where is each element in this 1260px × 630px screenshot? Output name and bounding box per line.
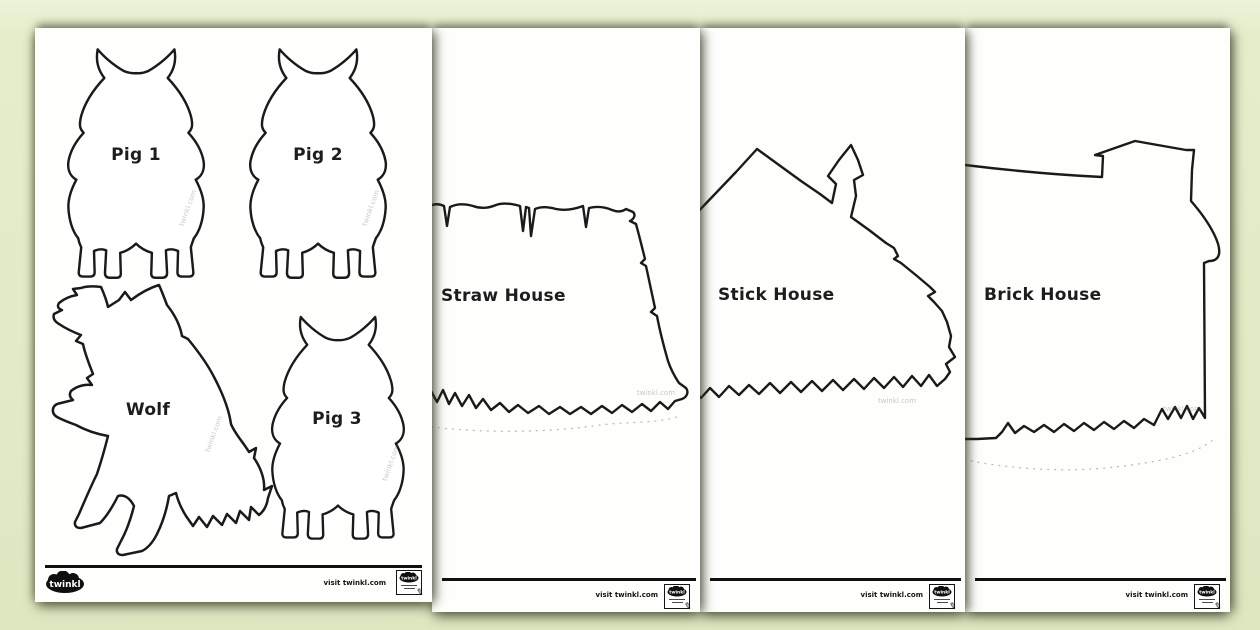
twinkl-logo: twinkl <box>45 571 85 595</box>
ground-dotted-line <box>965 440 1213 470</box>
twinkl-badge-cloud: twinkl <box>932 586 952 597</box>
stick-house-label: Stick House <box>718 285 834 305</box>
pig2-label: Pig 2 <box>293 145 343 165</box>
badge-caption-line <box>934 599 950 601</box>
visit-link: visit twinkl.com <box>324 579 386 587</box>
twinkl-badge-cloud: twinkl <box>667 586 687 597</box>
stick-house-outline <box>700 145 955 398</box>
page-brick-house: Brick House twinkl.com visit twinkl.com … <box>965 28 1230 612</box>
character-outlines <box>35 28 432 602</box>
visit-link: visit twinkl.com <box>861 591 923 599</box>
watermark-text: twinkl.com <box>637 389 675 397</box>
stick-house-art <box>700 28 965 612</box>
badge-caption-line <box>1202 602 1213 604</box>
twinkl-badge: twinkl ✎ <box>929 584 955 609</box>
pig1-label: Pig 1 <box>111 145 161 165</box>
badge-caption-line <box>404 588 415 590</box>
twinkl-badge: twinkl ✎ <box>1194 584 1220 609</box>
footer-rule <box>710 578 961 581</box>
wolf-outline <box>53 285 272 555</box>
twinkl-badge-text: twinkl <box>669 590 685 596</box>
brick-house-label: Brick House <box>984 285 1101 305</box>
straw-house-label: Straw House <box>441 286 566 306</box>
visit-link: visit twinkl.com <box>596 591 658 599</box>
brick-house-art <box>965 28 1230 612</box>
footer-rule <box>442 578 696 581</box>
badge-caption-line <box>937 602 948 604</box>
watermark-text: twinkl.com <box>1163 405 1201 413</box>
badge-caption-line <box>669 599 685 601</box>
twinkl-badge: twinkl ✎ <box>396 570 422 595</box>
badge-caption-line <box>672 602 683 604</box>
twinkl-logo-text: twinkl <box>49 580 80 590</box>
twinkl-badge-text: twinkl <box>934 590 950 596</box>
twinkl-badge-text: twinkl <box>1199 590 1215 596</box>
visit-link: visit twinkl.com <box>1126 591 1188 599</box>
page-stick-house: Stick House twinkl.com visit twinkl.com … <box>700 28 965 612</box>
straw-house-art <box>432 28 700 612</box>
page-character-cutouts: Pig 1 Pig 2 Wolf Pig 3 twinkl.com twinkl… <box>35 28 432 602</box>
twinkl-badge-text: twinkl <box>401 576 417 582</box>
wolf-label: Wolf <box>126 400 170 420</box>
page-straw-house: Straw House twinkl.com visit twinkl.com … <box>432 28 700 612</box>
watermark-text: twinkl.com <box>878 397 916 405</box>
badge-caption-line <box>401 585 417 587</box>
pig3-label: Pig 3 <box>312 409 362 429</box>
resource-preview: { "colors": {"background": "#e2ebc6", "p… <box>0 0 1260 630</box>
footer-rule <box>45 565 422 568</box>
twinkl-badge-cloud: twinkl <box>1197 586 1217 597</box>
straw-house-outline <box>432 203 687 414</box>
twinkl-badge: twinkl ✎ <box>664 584 690 609</box>
badge-caption-line <box>1199 599 1215 601</box>
twinkl-badge-cloud: twinkl <box>399 572 419 583</box>
footer-rule <box>975 578 1226 581</box>
ground-dotted-line <box>432 416 680 431</box>
